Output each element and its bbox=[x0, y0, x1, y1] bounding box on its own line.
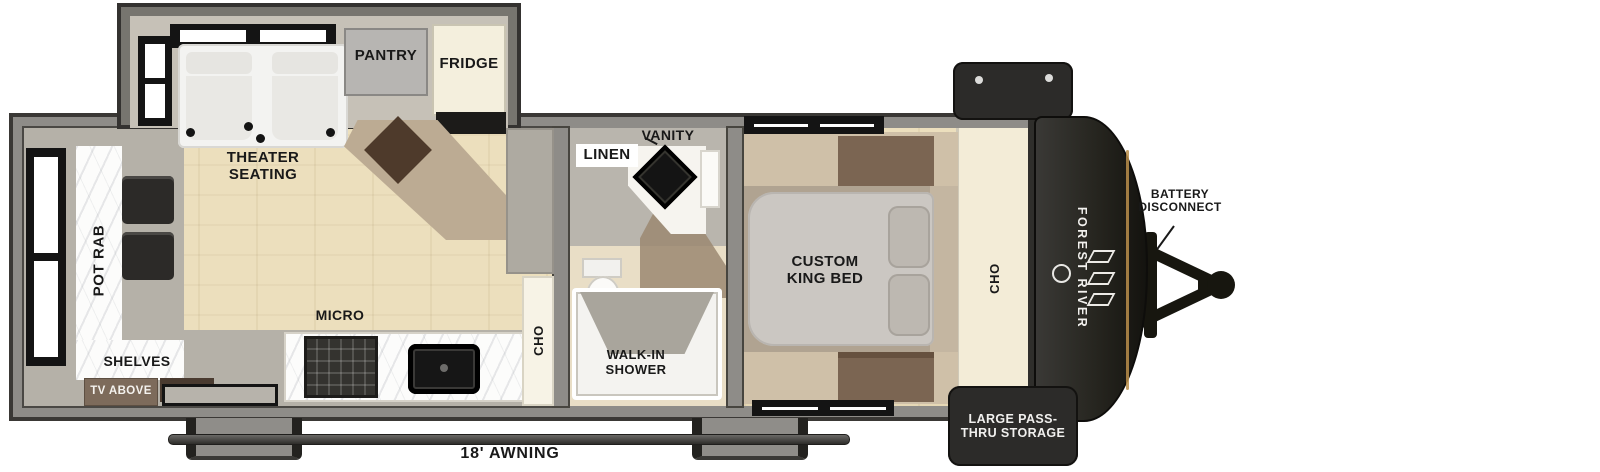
bedroom-ohc-label-wrap: CHO bbox=[978, 238, 1010, 318]
pass-thru-storage-tab: LARGE PASS-THRU STORAGE bbox=[948, 386, 1078, 466]
custom-king-bed-label: CUSTOM KING BED bbox=[780, 254, 870, 288]
bedroom-ohc-label: CHO bbox=[986, 263, 1001, 294]
fridge-label: FRIDGE bbox=[428, 56, 510, 73]
theater-seating-label: THEATER SEATING bbox=[213, 150, 313, 184]
bar-top-label-wrap: POT RAB bbox=[76, 180, 122, 340]
pass-thru-storage-label: LARGE PASS-THRU STORAGE bbox=[957, 412, 1069, 441]
cap-accent-line bbox=[1126, 150, 1129, 390]
pantry-label: PANTRY bbox=[341, 48, 431, 65]
bed-headboard bbox=[930, 186, 958, 352]
kitchen-ohc-label-wrap: CHO bbox=[522, 300, 554, 380]
brand-label-wrap: FOREST RIVER bbox=[1036, 120, 1128, 416]
rear-window-icon bbox=[26, 148, 66, 366]
theater-seats bbox=[178, 44, 348, 148]
awning-rail bbox=[168, 434, 850, 445]
toilet-icon bbox=[582, 258, 622, 278]
sink-icon bbox=[408, 344, 480, 394]
wall-living-bath bbox=[552, 126, 570, 408]
battery-disconnect-label: BATTERY DISCONNECT bbox=[1128, 188, 1232, 215]
micro-label: MICRO bbox=[300, 308, 380, 324]
slide-window-icon bbox=[138, 36, 172, 126]
linen-label: LINEN bbox=[576, 144, 638, 167]
propane-storage-tab bbox=[953, 62, 1073, 120]
walk-in-shower-label: WALK-IN SHOWER bbox=[588, 348, 684, 377]
shelves-label: SHELVES bbox=[92, 354, 182, 370]
tall-cabinet bbox=[506, 128, 554, 274]
bedroom-window-bottom-icon bbox=[752, 400, 894, 416]
vanity-label: VANITY bbox=[630, 128, 706, 144]
kitchen-ohc-label: CHO bbox=[530, 325, 545, 356]
bedroom-window-top-icon bbox=[744, 116, 884, 134]
pillow bbox=[888, 274, 930, 336]
floorplan-canvas: FOREST RIVER LARGE PASS-THRU STORAGE THE… bbox=[0, 0, 1600, 472]
wall-bath-bedroom bbox=[726, 126, 744, 408]
stove-icon bbox=[304, 336, 378, 398]
awning-label: 18' AWNING bbox=[420, 445, 600, 463]
bar-stool bbox=[122, 176, 174, 224]
bar-top-label: POT RAB bbox=[91, 224, 108, 296]
bar-stool bbox=[122, 232, 174, 280]
pillow bbox=[888, 206, 930, 268]
tv-above-label: TV ABOVE bbox=[84, 385, 158, 398]
brand-label: FOREST RIVER bbox=[1075, 207, 1089, 329]
vanity-side-cabinet bbox=[700, 150, 720, 208]
brand-stripes-icon bbox=[1090, 250, 1114, 306]
entry-door bbox=[162, 384, 278, 406]
brand-emblem-icon bbox=[1052, 264, 1071, 283]
bed-wardrobe-bottom bbox=[838, 348, 934, 402]
